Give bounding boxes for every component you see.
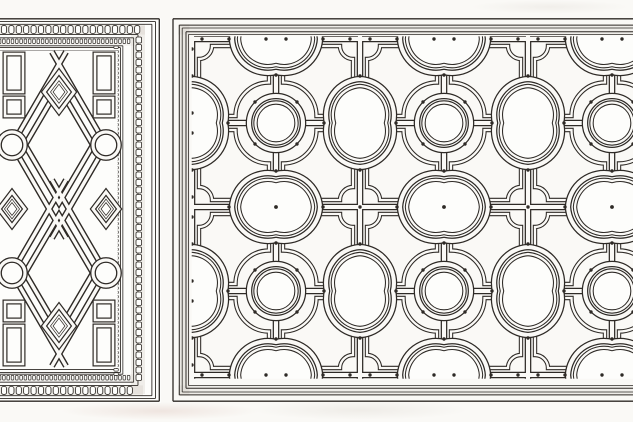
diamond-strapwork-panel xyxy=(0,18,161,403)
engraving-canvas xyxy=(0,0,633,422)
engraving-plate xyxy=(0,0,633,422)
quatrefoil-ceiling-panel xyxy=(154,1,633,412)
